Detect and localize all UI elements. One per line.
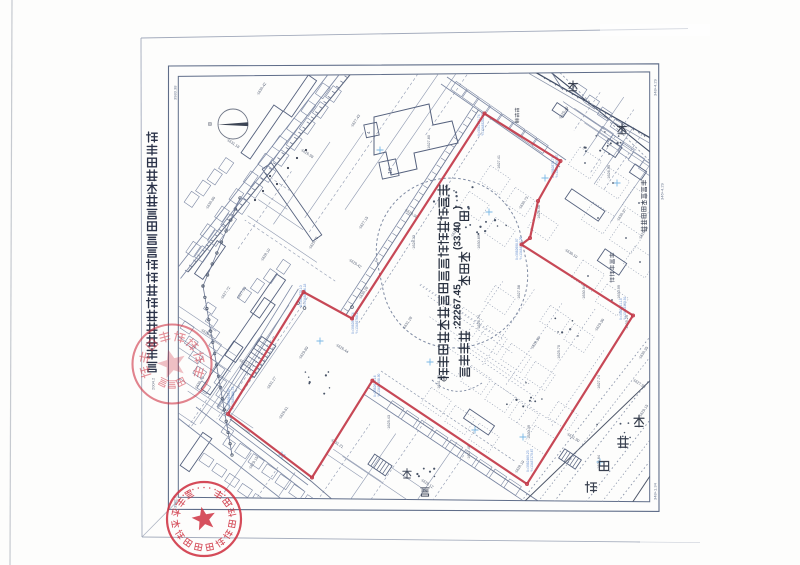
svg-text:348+4.29: 348+4.29 (653, 78, 658, 96)
svg-text:Y=13487170.67: Y=13487170.67 (530, 448, 534, 472)
svg-text:348+1.34: 348+1.34 (653, 482, 658, 500)
svg-text:16: 16 (388, 168, 394, 174)
svg-text:·1625.70: ·1625.70 (557, 345, 561, 360)
svg-text::22267.45: :22267.45 (453, 284, 464, 329)
svg-text:Y=13488486.18: Y=13488486.18 (303, 283, 307, 307)
svg-text:·1627.74: ·1627.74 (597, 375, 601, 390)
svg-text:·1630.39: ·1630.39 (527, 425, 531, 440)
svg-text:): ) (453, 206, 464, 209)
svg-text:Y=13484767.20: Y=13484767.20 (519, 236, 523, 260)
svg-text:Y=13483180.91: Y=13483180.91 (623, 296, 627, 320)
svg-text:·1630.99: ·1630.99 (617, 285, 621, 300)
svg-text:·1627.41: ·1627.41 (497, 155, 501, 170)
svg-text:·1630.89: ·1630.89 (477, 235, 481, 250)
svg-text:·1630.64: ·1630.64 (582, 285, 586, 300)
svg-text:·1627.58: ·1627.58 (517, 285, 521, 300)
svg-text:346+4.29: 346+4.29 (660, 182, 665, 200)
svg-text:2004.2: 2004.2 (151, 377, 156, 390)
svg-text:·1627.80: ·1627.80 (427, 135, 431, 150)
svg-text:·1625.43: ·1625.43 (387, 415, 391, 430)
svg-text:·1626.55: ·1626.55 (607, 165, 611, 180)
svg-text:(33.40: (33.40 (453, 221, 464, 250)
svg-text:·1626.74: ·1626.74 (477, 315, 481, 330)
svg-text:3983.38: 3983.38 (173, 85, 178, 100)
